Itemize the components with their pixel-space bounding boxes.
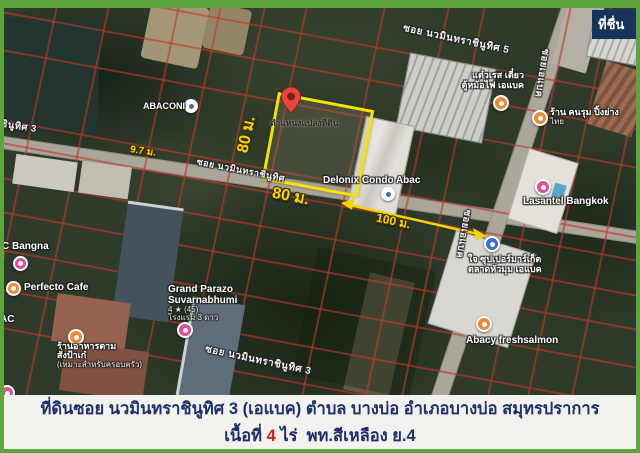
edge-marker	[4, 385, 15, 395]
freshsalmon-marker	[476, 316, 492, 332]
tamsang-line3: (เหมาะสำหรับครอบครัว)	[57, 361, 142, 369]
caption-line1: ที่ดินซอย นวมินทราชินูทิศ 3 (เอแบค) ตำบล…	[40, 396, 599, 422]
caption-area-value: 4	[267, 427, 276, 445]
taew-marker	[493, 95, 509, 111]
hotel-icon	[541, 185, 546, 190]
abac-bangna-label: C Bangna	[4, 241, 49, 252]
building-icon	[189, 104, 194, 109]
caption-area-prefix: เนื้อที่	[224, 427, 266, 445]
abac-bangna-marker	[13, 256, 28, 271]
taew-line2: ตู้หม้อไฟ เอแบค	[424, 81, 524, 91]
shopping-icon	[490, 242, 495, 247]
satellite-map: ตำแหน่งแปลงที่ดิน 80 ม. 80 ม. 9.7 ม. 100…	[4, 8, 636, 395]
grand-parazo-label: Grand Parazo Suvarnabhumi 4 ★ (45) โรงแร…	[168, 285, 237, 323]
building	[12, 154, 78, 192]
tamsang-label: ร้านอาหารตาม สั่งป้าเก๋ (เหมาะสำหรับครอบ…	[57, 342, 142, 369]
listing-image-frame: ตำแหน่งแปลงที่ดิน 80 ม. 80 ม. 9.7 ม. 100…	[0, 0, 640, 453]
street-navamin5: ซอย นวมินทราชินูทิศ 5	[402, 21, 511, 58]
building-icon	[386, 192, 391, 197]
abacondo-marker	[184, 99, 198, 113]
perfecto-marker	[6, 281, 21, 296]
perfecto-label: Perfecto Cafe	[24, 282, 88, 293]
caption-bar: ที่ดินซอย นวมินทราชินูทิศ 3 (เอแบค) ตำบล…	[4, 395, 636, 449]
grand-parazo-marker	[177, 322, 193, 338]
supermarket-marker	[484, 236, 500, 252]
delonix-label: Delonix Condo Abac	[323, 175, 420, 186]
cafe-icon	[11, 286, 16, 291]
supermarket-label: ใจ ซุปเปอร์มาร์เก็ต ตลาดหัวมุม เอแบค	[468, 255, 542, 275]
plot-position-label: ตำแหน่งแปลงที่ดิน	[270, 116, 339, 130]
building	[78, 161, 132, 200]
taew-label: แต๋วเรส เตี๋ยว ตู้หม้อไฟ เอแบค	[424, 71, 524, 91]
caption-area-suffix: ไร่ พท.สีเหลือง ย.4	[276, 427, 416, 445]
lasantel-label: Lasantel Bangkok	[523, 196, 609, 207]
plot-side-left: 80 ม.	[231, 114, 263, 156]
hotel-icon	[183, 328, 188, 333]
delonix-marker	[381, 187, 395, 201]
caption-line2: เนื้อที่ 4 ไร่ พท.สีเหลือง ย.4	[224, 423, 415, 449]
abacondo-label: ABACONI	[143, 101, 185, 111]
grand-parazo-line1: Grand Parazo	[168, 285, 237, 296]
watermark-badge: ที่ชื่น	[592, 10, 636, 39]
location-pin-icon	[280, 86, 302, 114]
supermarket-line2: ตลาดหัวมุม เอแบค	[468, 265, 542, 275]
ac-partial-label: AC	[4, 314, 14, 325]
restaurant-icon	[74, 335, 79, 340]
restaurant-icon	[499, 101, 504, 106]
khonrum-label: ร้าน คนรุม ปิ้งย่าง ไทย	[550, 108, 619, 127]
khonrum-marker	[532, 110, 548, 126]
freshsalmon-label: Abacy freshsalmon	[466, 335, 558, 346]
restaurant-icon	[538, 116, 543, 121]
lasantel-marker	[535, 179, 551, 195]
khonrum-line2: ไทย	[550, 118, 619, 127]
grand-parazo-type: โรงแรม 3 ดาว	[168, 314, 237, 322]
hotel-icon	[18, 261, 23, 266]
restaurant-icon	[482, 322, 487, 327]
